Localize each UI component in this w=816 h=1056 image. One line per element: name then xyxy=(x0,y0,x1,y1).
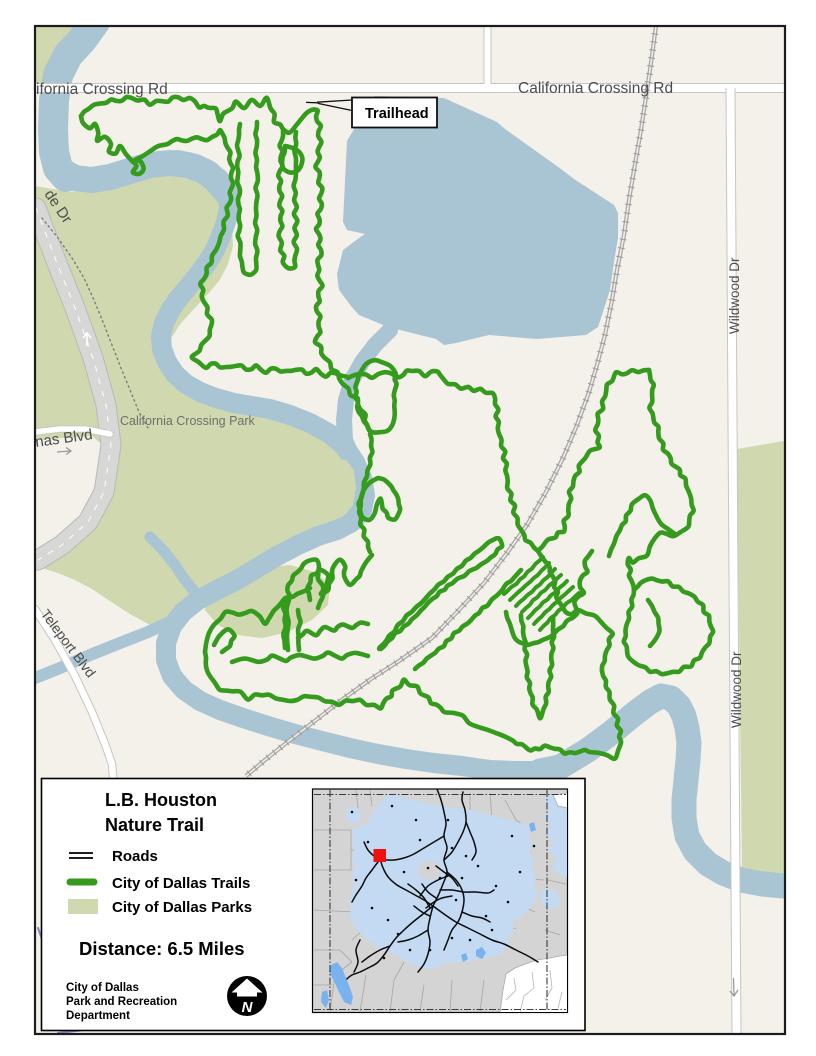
svg-text:City of Dallas Parks: City of Dallas Parks xyxy=(112,899,252,916)
svg-text:City of Dallas: City of Dallas xyxy=(66,982,139,994)
svg-text:Roads: Roads xyxy=(112,848,158,865)
svg-text:ifornia Crossing Rd: ifornia Crossing Rd xyxy=(36,81,168,98)
svg-text:Park and Recreation: Park and Recreation xyxy=(66,996,177,1008)
svg-text:Trailhead: Trailhead xyxy=(365,106,429,122)
svg-text:Distance: 6.5 Miles: Distance: 6.5 Miles xyxy=(79,938,245,959)
svg-text:N: N xyxy=(242,999,254,1016)
svg-text:L.B. Houston: L.B. Houston xyxy=(105,790,217,810)
svg-text:Nature Trail: Nature Trail xyxy=(105,815,204,835)
svg-text:Department: Department xyxy=(66,1010,130,1022)
svg-text:City of Dallas Trails: City of Dallas Trails xyxy=(112,875,250,892)
svg-text:Wildwood Dr: Wildwood Dr xyxy=(727,257,742,334)
svg-text:California Crossing Rd: California Crossing Rd xyxy=(518,80,673,97)
svg-text:Wildwood Dr: Wildwood Dr xyxy=(729,651,744,728)
svg-text:California Crossing Park: California Crossing Park xyxy=(120,414,256,428)
